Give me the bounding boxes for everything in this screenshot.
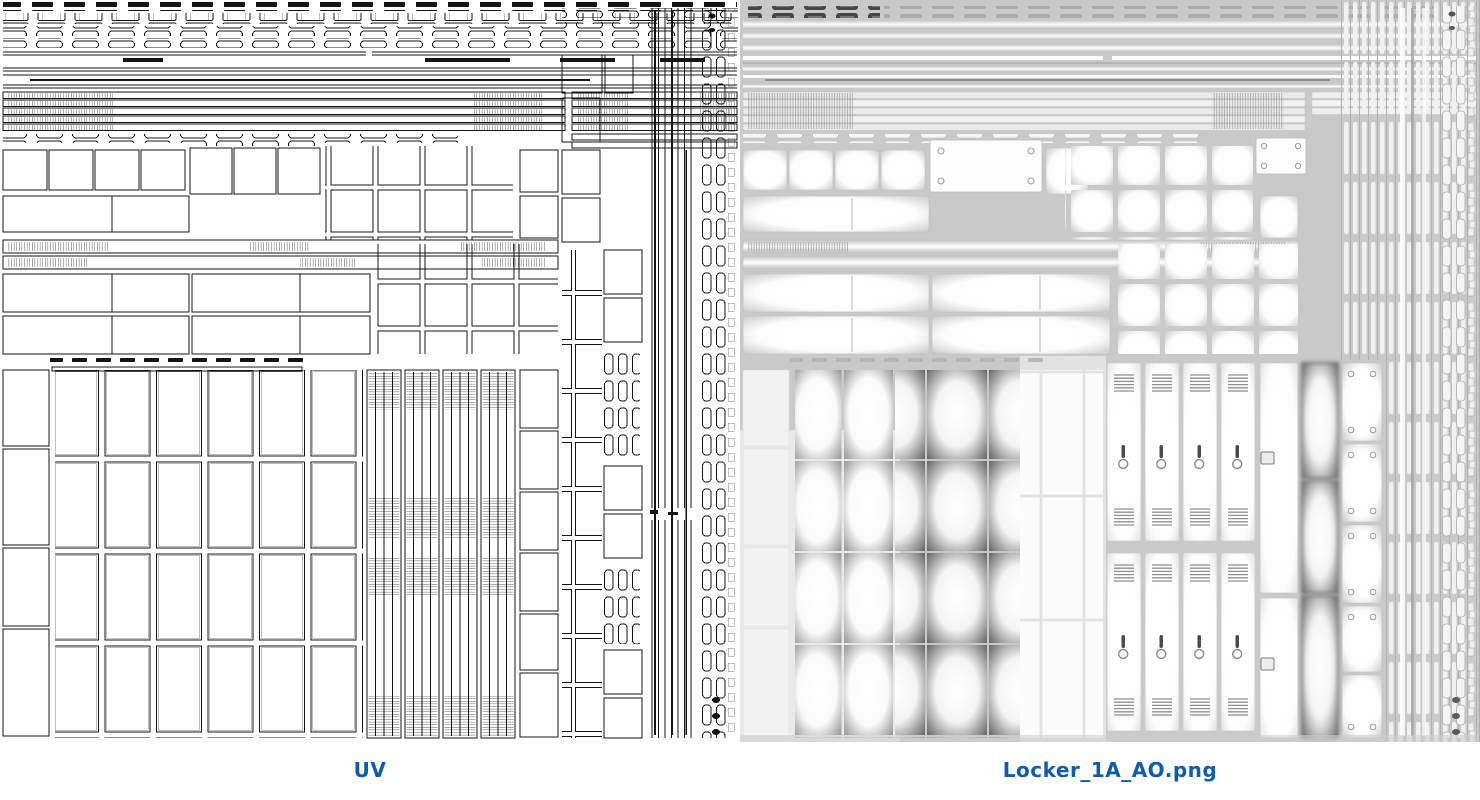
ao-latch-doors	[1260, 363, 1298, 738]
caption-row: UV Locker_1A_AO.png	[0, 742, 1480, 800]
ao-rivet-panels	[1342, 363, 1382, 738]
uv-caption: UV	[0, 742, 740, 800]
uv-small-dash-row	[50, 358, 310, 365]
ao-small-dash-row	[790, 358, 1050, 365]
ao-texture-image	[740, 0, 1480, 742]
uv-door-grid	[3, 370, 363, 738]
ao-big-panels	[743, 370, 1103, 738]
rivet-plate-2	[1256, 138, 1306, 174]
rivet-plate	[930, 140, 1042, 192]
uv-pill-columns-right	[700, 8, 739, 738]
ao-filename-caption: Locker_1A_AO.png	[740, 742, 1480, 800]
ao-dark-column	[1302, 363, 1338, 738]
uv-atlas-image	[0, 0, 740, 742]
uv-slat-column	[646, 8, 694, 738]
texture-compare-row	[0, 0, 1480, 742]
uv-preview-panel	[0, 0, 740, 742]
ao-preview-panel	[740, 0, 1480, 742]
texture-preview-page: UV Locker_1A_AO.png	[0, 0, 1480, 800]
